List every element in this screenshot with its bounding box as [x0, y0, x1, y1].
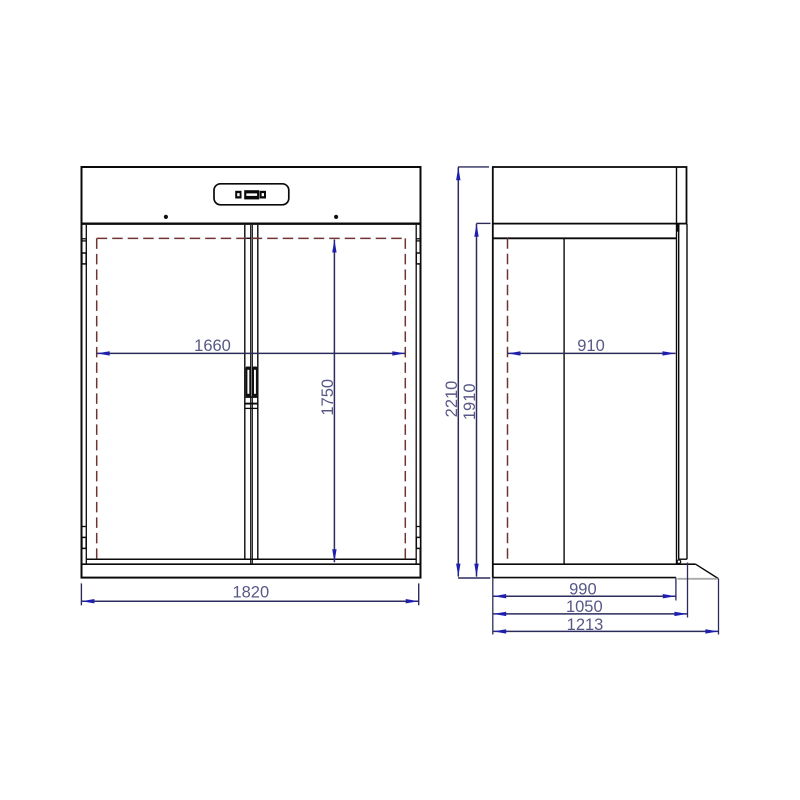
- svg-text:1660: 1660: [194, 337, 231, 355]
- svg-text:2210: 2210: [443, 381, 461, 418]
- svg-text:1820: 1820: [232, 583, 269, 601]
- svg-text:990: 990: [569, 580, 597, 598]
- svg-text:1050: 1050: [566, 598, 603, 616]
- svg-text:1213: 1213: [567, 616, 604, 634]
- svg-text:910: 910: [577, 337, 605, 355]
- svg-text:1910: 1910: [461, 383, 479, 420]
- svg-text:1750: 1750: [319, 379, 337, 416]
